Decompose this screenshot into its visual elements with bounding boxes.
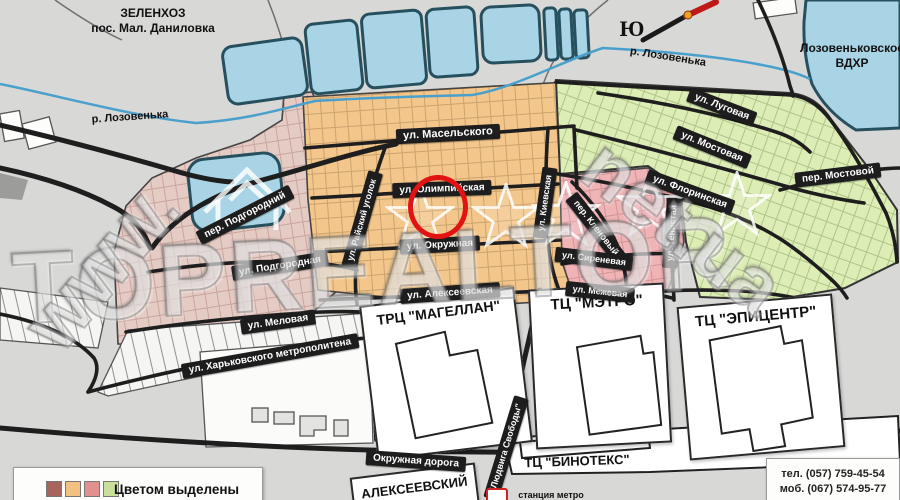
legend-swatches bbox=[46, 481, 119, 497]
legend-swatch-rose bbox=[46, 481, 62, 497]
target-location-marker bbox=[408, 175, 468, 239]
reservoir-label: Лозовеньковское ВДХР bbox=[800, 41, 900, 71]
district-alekseevsky-label: АЛЕКСЕЕВСКИЙ bbox=[353, 473, 476, 500]
contacts-box: тел. (057) 759-45-54 моб. (067) 574-95-7… bbox=[766, 458, 900, 500]
mobile-number: моб. (067) 574-95-77 bbox=[767, 482, 899, 497]
legend-box: Цветом выделены bbox=[13, 467, 263, 500]
metro-station-icon bbox=[486, 488, 508, 500]
legend-title: Цветом выделены bbox=[114, 482, 239, 497]
map-canvas: ТРЦ "МАГЕЛЛАН" ТЦ "МЭТРО" ТЦ "ЭПИЦЕНТР" … bbox=[0, 0, 900, 500]
legend-swatch-pink bbox=[84, 481, 100, 497]
epicentr-building-outline bbox=[679, 296, 843, 459]
compass-south-label: Ю bbox=[620, 16, 645, 42]
compass-needle bbox=[643, 2, 716, 40]
metro-building-outline bbox=[530, 285, 670, 448]
phone-number: тел. (057) 759-45-54 bbox=[767, 467, 899, 482]
mall-metro: ТЦ "МЭТРО" bbox=[528, 283, 672, 450]
legend-swatch-orange bbox=[65, 481, 81, 497]
metro-station-label: станция метро bbox=[518, 490, 584, 500]
settlement-label: ЗЕЛЕНХОЗ пос. Мал. Даниловка bbox=[91, 6, 215, 36]
mall-epicentr: ТЦ "ЭПИЦЕНТР" bbox=[677, 293, 846, 460]
